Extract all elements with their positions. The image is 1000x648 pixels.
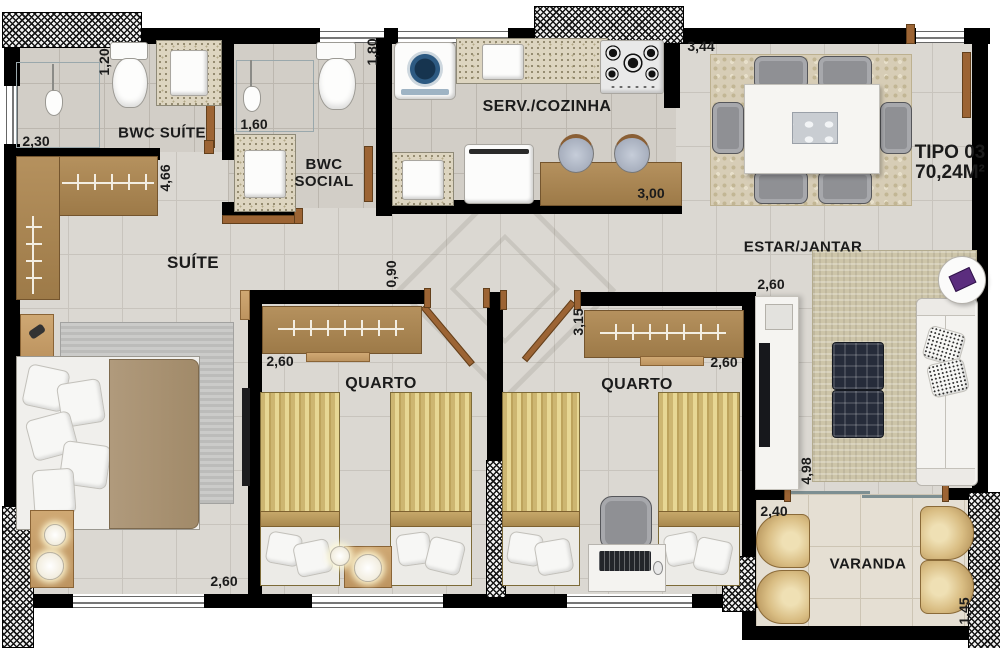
single-bed	[658, 392, 740, 586]
dining-chair	[880, 102, 912, 154]
lamp	[354, 554, 382, 582]
sliding-glass-door	[862, 495, 948, 498]
shower-head-icon	[250, 60, 252, 88]
dim-dining-width: 3,44	[687, 38, 714, 54]
wardrobe-rail	[600, 324, 726, 340]
dim-suite-width: 2,60	[210, 573, 237, 589]
bed-band	[502, 511, 580, 527]
dim-balcony-width: 2,40	[760, 503, 787, 519]
unit-area-label: 70,24M²	[915, 162, 985, 184]
side-table	[938, 256, 986, 304]
dim-bedroom2-width: 2,60	[710, 354, 737, 370]
floor-plan: BWC SUÍTE BWC SOCIAL SERV./COZINHA ESTAR…	[0, 0, 1000, 648]
kitchen-counter	[456, 38, 608, 84]
washing-machine	[394, 42, 456, 100]
bed-cover	[261, 393, 339, 512]
dim-hall-width: 0,90	[383, 260, 399, 287]
label-bwc-suite: BWC SUÍTE	[118, 125, 206, 142]
single-bed	[260, 392, 340, 586]
window	[312, 596, 443, 608]
laundry-basin	[402, 160, 444, 200]
door-leaf	[222, 215, 298, 224]
pillow	[292, 538, 334, 579]
label-suite: SUÍTE	[167, 253, 219, 273]
hatch-column	[968, 492, 1000, 648]
pouf	[832, 390, 884, 438]
burner-icon	[645, 67, 659, 81]
pillow	[533, 537, 574, 577]
sink	[170, 50, 208, 96]
burner-icon	[605, 67, 619, 81]
balcony-chair	[756, 514, 810, 568]
label-bedroom2: QUARTO	[601, 376, 672, 394]
bed-band	[658, 511, 740, 527]
shower-head-icon	[52, 64, 54, 92]
desk-chair	[600, 496, 652, 550]
sliding-glass-door	[786, 491, 870, 494]
dim-living-width: 2,60	[757, 276, 784, 292]
pillow	[692, 536, 734, 577]
shower-head-icon	[45, 90, 63, 116]
wall-segment	[578, 292, 746, 306]
sink	[244, 150, 286, 198]
burner-icon	[605, 45, 621, 61]
wardrobe-rail	[278, 320, 404, 336]
kitchen-sink	[482, 44, 524, 80]
tv	[759, 343, 770, 447]
tv	[242, 388, 250, 486]
wall-segment	[664, 44, 680, 108]
dim-kitchen-width: 3,00	[637, 185, 664, 201]
door-leaf	[962, 52, 971, 118]
bed-cover	[503, 393, 579, 512]
label-kitchen: SERV./COZINHA	[483, 98, 612, 116]
dim-bwc-social-width: 1,60	[240, 116, 267, 132]
dim-bwc-social-depth: 1,80	[364, 38, 380, 65]
dining-chair	[754, 170, 808, 204]
burner-icon	[643, 45, 659, 61]
bed-band	[260, 511, 340, 527]
pillow	[423, 535, 466, 577]
door-jamb	[424, 288, 431, 308]
door-jamb	[906, 24, 915, 44]
single-bed	[502, 392, 580, 586]
dim-bedroom2-depth: 3,15	[570, 308, 586, 335]
label-bwc-social: BWC SOCIAL	[287, 156, 361, 191]
washer-panel	[401, 89, 449, 95]
single-bed	[390, 392, 472, 586]
burner-icon	[623, 53, 643, 73]
door-jamb	[500, 290, 507, 310]
mouse	[653, 561, 663, 575]
wall-segment	[248, 290, 424, 304]
balcony-chair	[920, 506, 974, 560]
pillow	[926, 357, 971, 399]
suite-bed	[16, 356, 200, 530]
sofa-arm	[917, 468, 975, 485]
lamp	[330, 546, 350, 566]
sofa	[916, 298, 978, 486]
door-jamb	[942, 484, 949, 502]
wardrobe-step	[640, 356, 704, 366]
wardrobe-rail	[62, 174, 154, 190]
lamp	[44, 524, 66, 546]
wardrobe-step	[306, 352, 370, 362]
wall-segment	[222, 38, 234, 160]
bed-band	[390, 511, 472, 527]
dim-suite-depth: 4,66	[157, 164, 173, 191]
door-jamb	[574, 290, 581, 310]
shower-head-icon	[243, 86, 261, 112]
door-jamb	[204, 140, 214, 154]
toilet	[112, 58, 148, 108]
bed-cover	[391, 393, 471, 512]
phone	[28, 323, 46, 340]
speaker	[765, 304, 793, 330]
cooktop	[600, 40, 664, 94]
lamp	[36, 552, 64, 580]
dining-chair	[818, 170, 872, 204]
dim-bwc-suite-depth: 1,20	[96, 48, 112, 75]
label-bedroom1: QUARTO	[345, 375, 416, 393]
tv-rack	[755, 296, 799, 490]
bed-cover	[659, 393, 739, 512]
label-dining: ESTAR/JANTAR	[744, 239, 862, 256]
washer-drum	[407, 51, 443, 87]
toilet	[318, 58, 356, 110]
label-balcony: VARANDA	[830, 556, 907, 573]
dim-bwc-suite-width: 2,30	[22, 133, 49, 149]
dim-living-depth: 4,98	[798, 457, 814, 484]
dim-balcony-depth: 1,45	[956, 597, 972, 624]
wall-segment	[204, 594, 312, 608]
balcony-chair	[756, 570, 810, 624]
unit-type-label: TIPO 03	[915, 142, 986, 164]
wall-segment	[964, 28, 990, 44]
knob-row	[609, 85, 655, 89]
decor-object	[948, 267, 976, 292]
door-leaf	[364, 146, 373, 202]
wardrobe-rail	[26, 216, 42, 294]
table-centerpiece	[792, 112, 838, 144]
dining-chair	[712, 102, 744, 154]
door-jamb	[483, 288, 490, 308]
wall-balcony-bottom	[742, 626, 976, 640]
fridge	[464, 144, 534, 204]
window	[73, 596, 204, 608]
bar-stool	[558, 134, 594, 173]
desk	[588, 544, 666, 592]
dim-bedroom1-width: 2,60	[266, 353, 293, 369]
window	[567, 596, 692, 608]
pouf	[832, 342, 884, 390]
keyboard	[599, 551, 651, 571]
nightstand	[20, 314, 54, 358]
blanket	[109, 359, 199, 529]
wall-segment	[742, 292, 756, 592]
door-frame	[240, 290, 250, 320]
fridge-handle	[469, 149, 529, 154]
bar-stool	[614, 134, 650, 173]
